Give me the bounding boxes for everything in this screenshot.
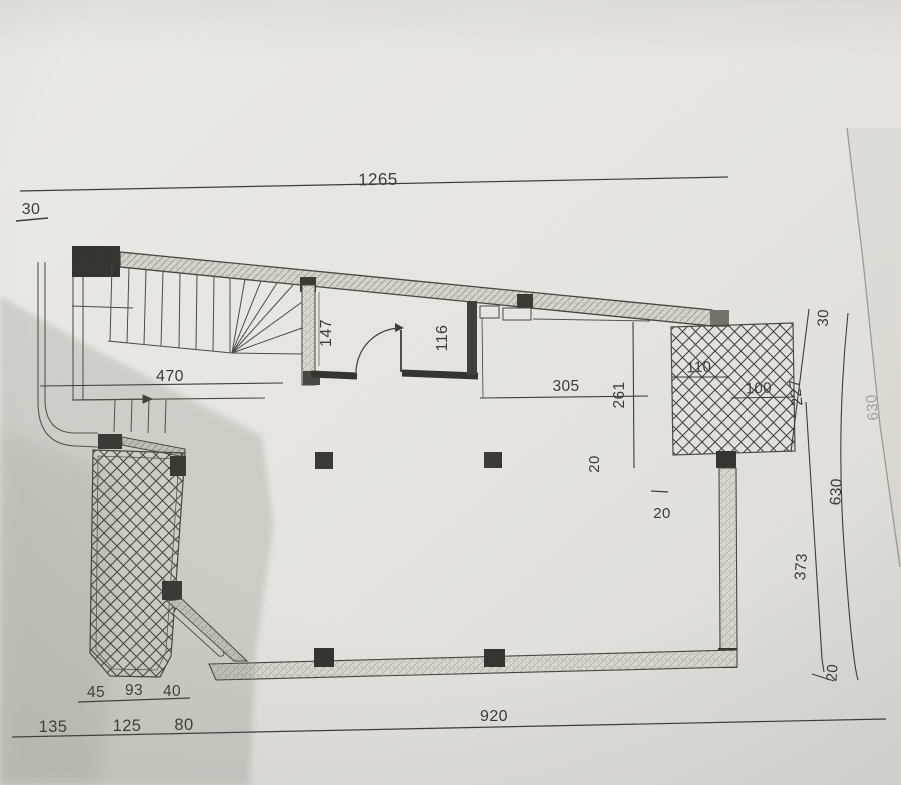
photo-lighting [0, 0, 901, 785]
photographed-floor-plan: 1265 30 [0, 0, 901, 785]
photo-grain [0, 0, 901, 785]
floor-plan-drawing: 1265 30 [0, 0, 901, 785]
